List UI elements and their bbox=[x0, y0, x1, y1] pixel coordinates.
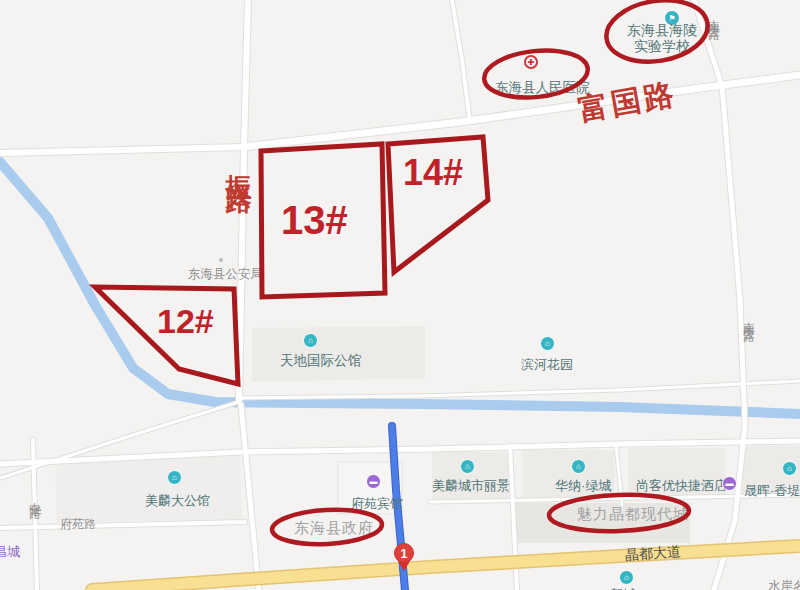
road-name-zhenxing: 振兴路 bbox=[222, 153, 257, 174]
parcel-14-label: 14# bbox=[403, 152, 463, 194]
parcel-13-label: 13# bbox=[281, 198, 348, 243]
red-text-layer: 富国路 振兴路 12# 13# 14# bbox=[0, 0, 800, 590]
road-name-fuguo: 富国路 bbox=[575, 74, 680, 132]
parcel-12-label: 12# bbox=[157, 302, 214, 341]
map-canvas[interactable]: ⚑ 东海县海陵 实验学校 ✚ 东海县人民医院 东海县公安局 ⌂ 天地国际公馆 ⌂… bbox=[0, 0, 800, 590]
